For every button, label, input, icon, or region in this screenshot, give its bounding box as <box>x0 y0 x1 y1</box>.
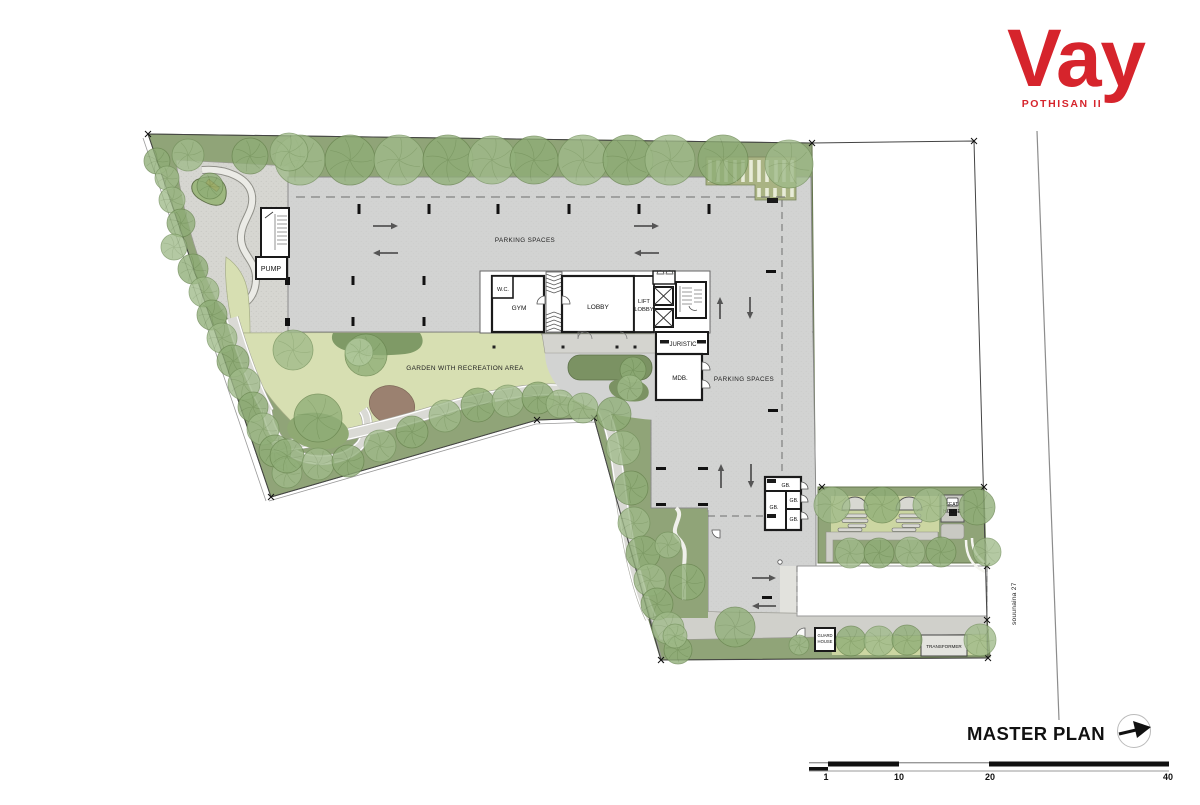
svg-text:LOBBY: LOBBY <box>587 304 609 311</box>
svg-text:GB.: GB. <box>770 505 779 511</box>
svg-text:10: 10 <box>894 772 904 782</box>
svg-text:W.C.: W.C. <box>497 287 509 293</box>
svg-text:GB.: GB. <box>790 517 799 523</box>
svg-text:JURISTIC: JURISTIC <box>670 342 698 348</box>
svg-text:LOBBY: LOBBY <box>634 307 653 313</box>
svg-text:souunaina 27: souunaina 27 <box>1011 582 1018 625</box>
svg-text:MDB.: MDB. <box>672 375 688 382</box>
svg-text:20: 20 <box>985 772 995 782</box>
svg-text:40: 40 <box>1163 772 1173 782</box>
svg-text:GB.: GB. <box>782 483 791 489</box>
svg-text:PARKING SPACES: PARKING SPACES <box>495 237 555 244</box>
svg-text:POTHISAN II: POTHISAN II <box>1022 98 1103 110</box>
svg-text:MASTER PLAN: MASTER PLAN <box>967 723 1105 744</box>
svg-text:TRANSFORMER: TRANSFORMER <box>926 644 962 649</box>
svg-text:PUMP: PUMP <box>261 266 282 273</box>
svg-text:GUARD: GUARD <box>817 633 832 638</box>
svg-text:HOUSE: HOUSE <box>818 639 833 644</box>
svg-text:SEAT: SEAT <box>946 502 959 508</box>
svg-text:PARKING SPACES: PARKING SPACES <box>714 376 774 383</box>
svg-text:GB.: GB. <box>790 498 799 504</box>
svg-text:1: 1 <box>823 772 828 782</box>
svg-text:GYM: GYM <box>512 305 527 312</box>
svg-text:LIFT: LIFT <box>638 299 650 305</box>
svg-text:Vay: Vay <box>1007 13 1146 104</box>
svg-text:GARDEN WITH RECREATION AREA: GARDEN WITH RECREATION AREA <box>406 365 524 372</box>
